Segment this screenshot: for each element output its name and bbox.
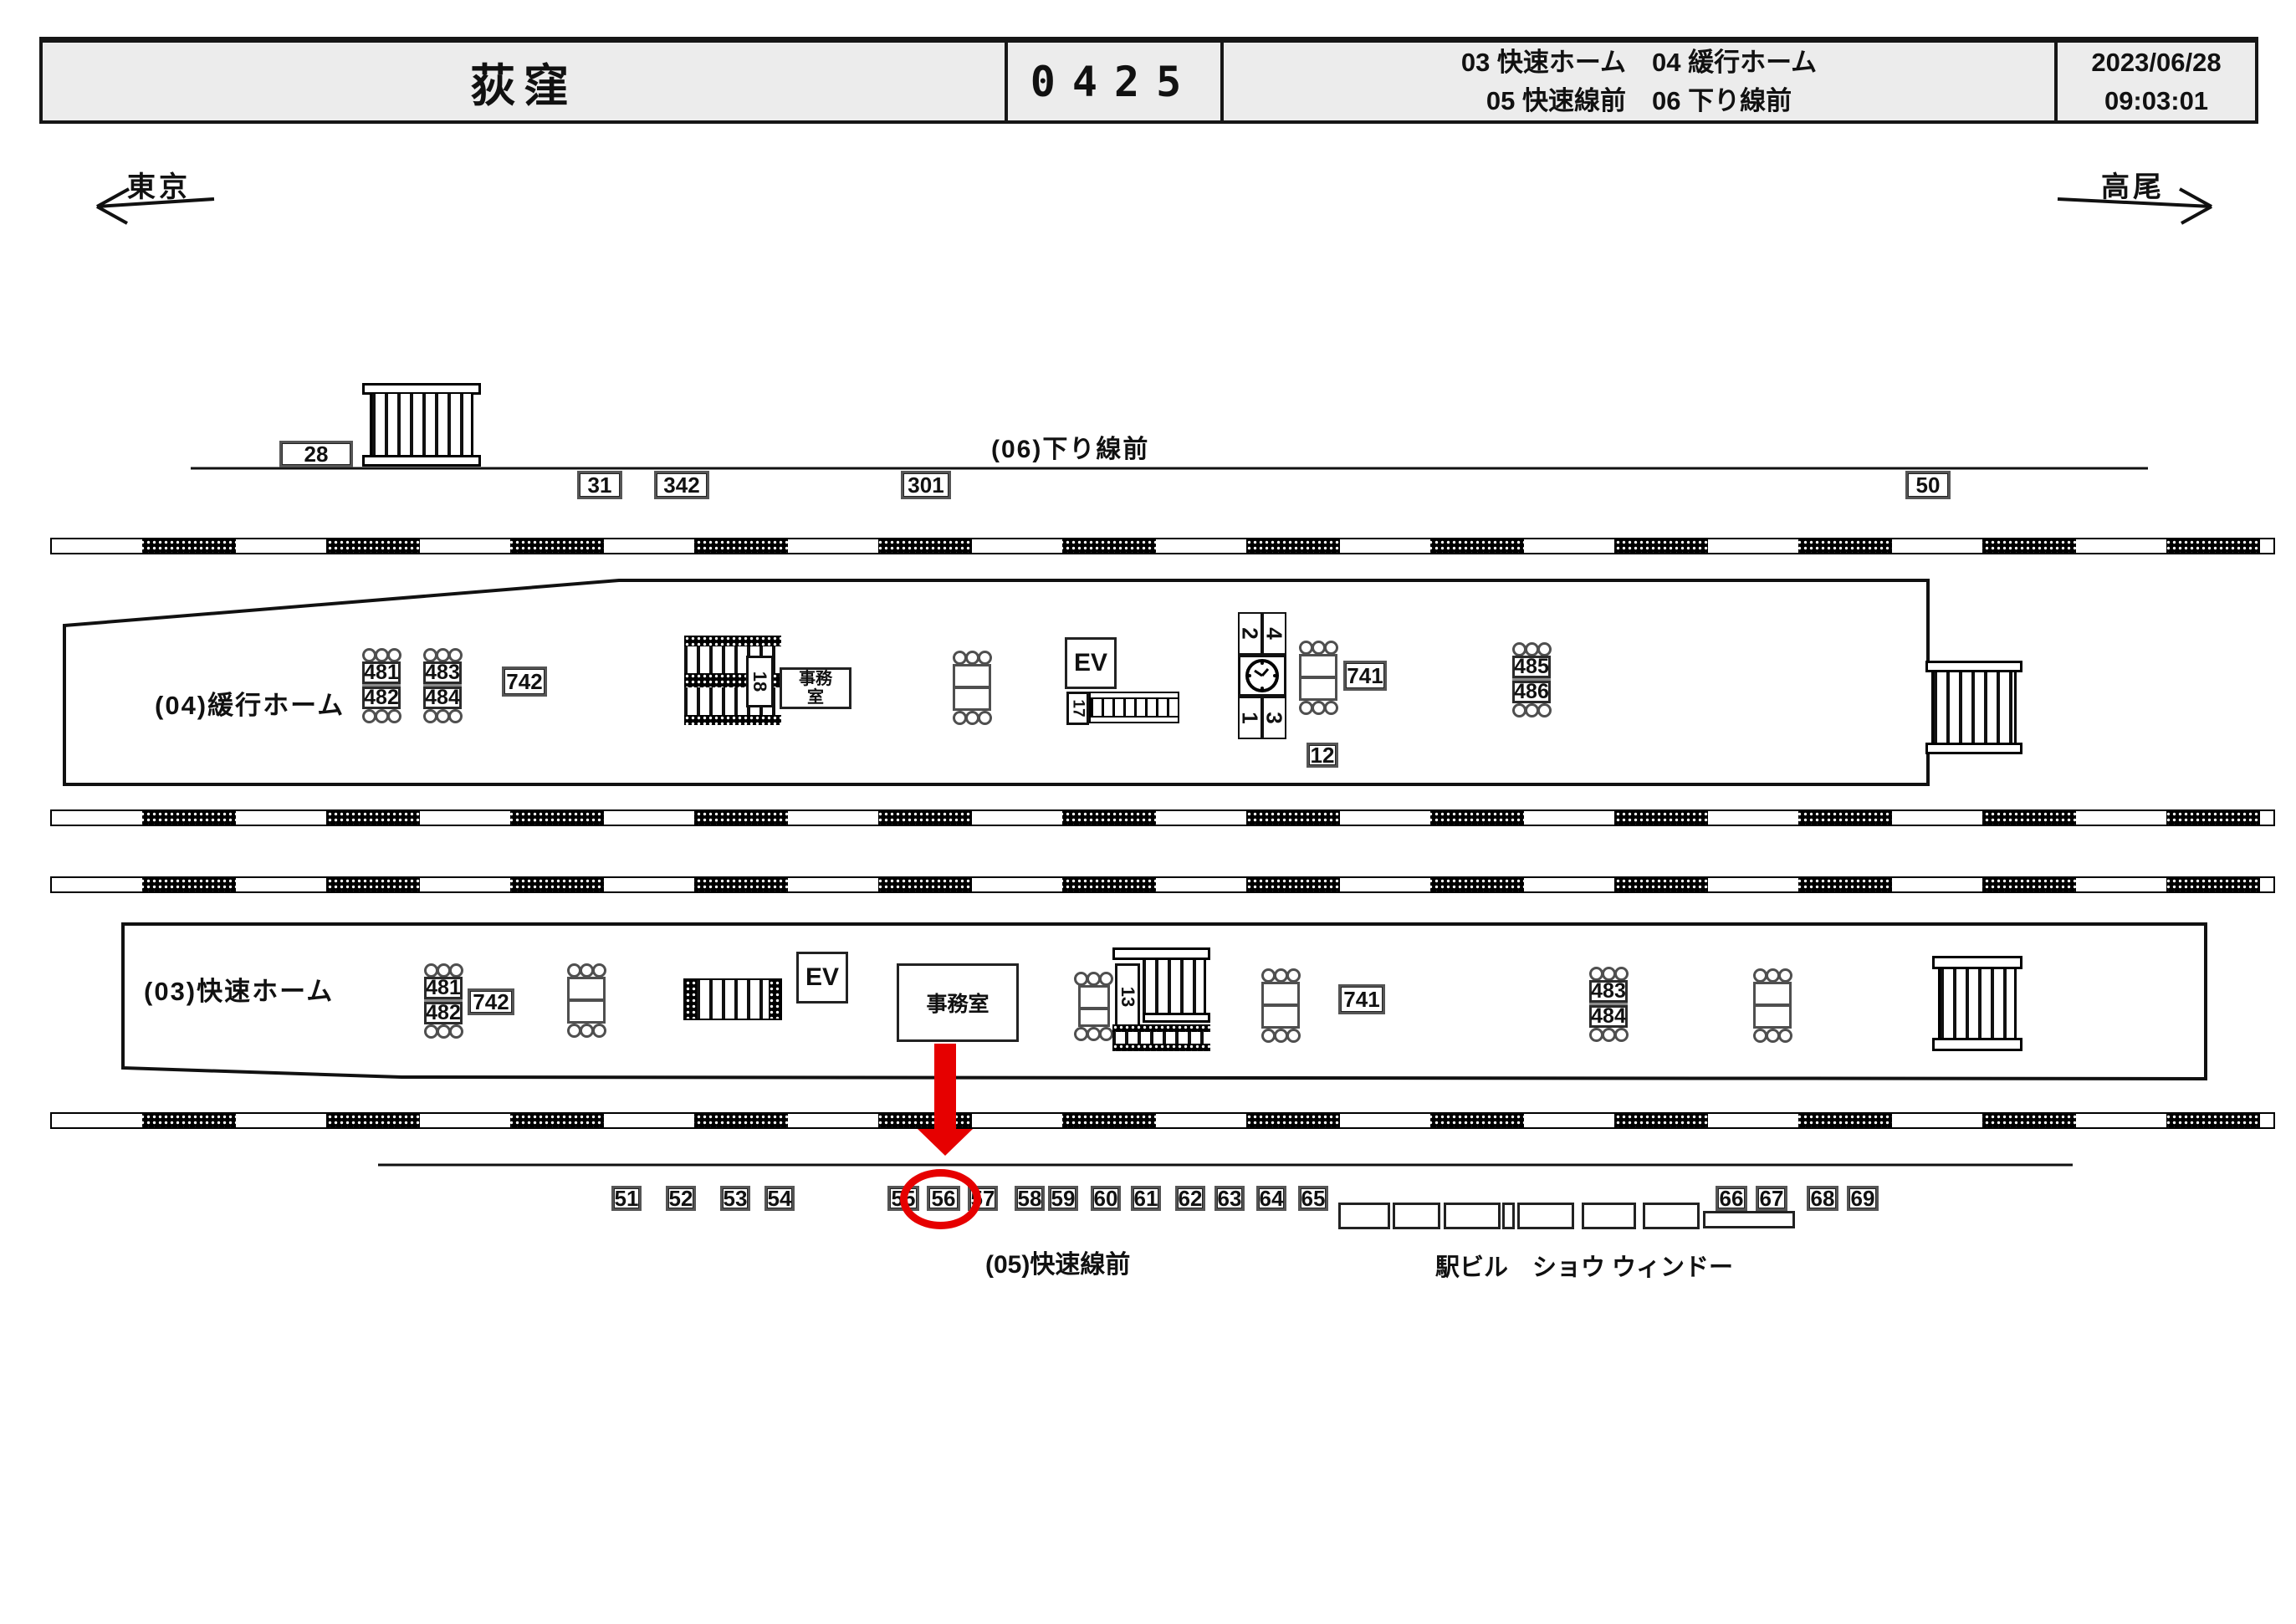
position-cell-483-p03[interactable]: 483 [1589,980,1628,1003]
bench-seats-icon [1754,1029,1792,1042]
station-code: 0425 [1030,58,1198,106]
highlight-arrow-shaft [934,1044,956,1131]
header-bar: 荻窪 0425 03 快速ホーム 04 緩行ホーム 05 快速線前 06 下り線… [39,37,2258,124]
direction-right-label: 高尾 [2101,164,2165,205]
bench-plain [567,963,606,1037]
office-label-line2: 室 [807,688,824,707]
bench-seats-icon [1300,641,1337,654]
show-window [1444,1203,1501,1229]
show-window [1393,1203,1440,1229]
bench-seats-icon [954,711,991,724]
position-box-12[interactable]: 12 [1307,743,1338,768]
bench-plain [1753,968,1792,1042]
bench-sign-483-484-p03: 483 484 [1589,967,1628,1041]
track-band-3 [50,876,2275,893]
stairs-p03-left [683,978,782,1020]
bench-seats-icon [363,709,401,723]
bench-seats-icon [424,709,462,723]
date-text: 2023/06/28 [2091,43,2221,82]
bench-plain [1261,968,1300,1042]
highlight-arrow-head-icon [918,1129,973,1156]
position-box-67[interactable]: 67 [1756,1186,1787,1211]
bench-seats-icon [954,651,991,664]
escalator-17-label: 17 [1069,699,1087,717]
position-box-741-p04[interactable]: 741 [1343,661,1387,691]
station-code-cell: 0425 [1005,43,1220,120]
tower-stair-2: 2 [1237,627,1263,639]
position-box-63[interactable]: 63 [1214,1186,1245,1211]
bench-seats-icon [568,1024,606,1037]
elevator-box-p04: EV [1065,637,1117,689]
bench-seats-icon [424,648,462,661]
bench-sign-481-482: 481 482 [362,648,401,723]
position-box-61[interactable]: 61 [1131,1186,1161,1211]
stairs-13-box: 13 [1115,963,1140,1030]
station-facility-map: 荻窪 0425 03 快速ホーム 04 緩行ホーム 05 快速線前 06 下り線… [0,0,2296,1624]
escalator-17-box: 17 [1066,692,1089,725]
stairs-line06 [362,383,481,467]
show-window [1502,1203,1515,1229]
elevator-box-p03: EV [796,952,848,1004]
position-box-301[interactable]: 301 [901,471,951,499]
bench-seats-icon [1075,972,1112,985]
tower-stair-1: 1 [1237,712,1263,723]
position-box-742-p04[interactable]: 742 [502,666,547,697]
position-box-741-p03[interactable]: 741 [1338,984,1385,1014]
office-box-p03: 事務室 [897,963,1019,1042]
show-window-wide [1703,1211,1795,1228]
position-box-53[interactable]: 53 [720,1186,750,1211]
position-box-54[interactable]: 54 [764,1186,795,1211]
bench-seats-icon [1300,701,1337,714]
show-window-label: 駅ビル ショウ ウィンドー [1435,1248,1733,1283]
show-window [1338,1203,1390,1229]
office-box-p04: 事務 室 [780,667,851,709]
position-box-31[interactable]: 31 [577,471,622,499]
bench-seats-icon [425,963,463,977]
show-window [1643,1203,1700,1229]
bench-seats-icon [1590,967,1628,980]
stairs-18-label: 18 [749,672,770,692]
bench-seats-icon [363,648,401,661]
position-box-342[interactable]: 342 [654,471,709,499]
position-cell-482-p03[interactable]: 482 [424,1002,463,1024]
clock-icon [1244,657,1281,694]
tower-stair-3: 3 [1261,712,1287,723]
position-cell-484-p03[interactable]: 484 [1589,1005,1628,1028]
stairs-13-top-rail [1112,947,1210,960]
stairs-p04-right [1925,661,2022,754]
position-box-62[interactable]: 62 [1175,1186,1205,1211]
position-cell-484[interactable]: 484 [423,687,462,709]
stairs-18: 18 [684,636,781,725]
show-window [1517,1203,1574,1229]
tower-stair-4: 4 [1261,627,1287,639]
platform04-label: (04)緩行ホーム [155,684,345,722]
position-box-66[interactable]: 66 [1716,1186,1747,1211]
position-cell-481[interactable]: 481 [362,661,401,684]
position-cell-485[interactable]: 485 [1512,656,1551,678]
position-cell-486[interactable]: 486 [1512,681,1551,703]
platform03-label: (03)快速ホーム [144,970,334,1008]
direction-left-label: 東京 [127,164,191,205]
platform-list-line2: 05 快速線前 06 下り線前 [1486,82,1792,120]
position-cell-481-p03[interactable]: 481 [424,977,463,999]
position-box-69[interactable]: 69 [1847,1186,1879,1211]
position-box-51[interactable]: 51 [611,1186,642,1211]
track-band-4 [50,1112,2275,1129]
office-label-line1: 事務 [799,670,832,688]
platform-list-line1: 03 快速ホーム 04 緩行ホーム [1461,43,1817,82]
datetime-cell: 2023/06/28 09:03:01 [2054,43,2255,120]
line05-label: (05)快速線前 [985,1244,1130,1280]
bench-sign-481-482-p03: 481 482 [424,963,463,1038]
clock-cell [1238,655,1286,697]
station-name: 荻窪 [470,49,577,115]
stairs-13-lower [1112,1024,1210,1051]
stairs-13-bottom-rail [1143,1013,1210,1023]
line06-label: (06)下り線前 [991,428,1149,465]
time-text: 09:03:01 [2104,82,2208,120]
position-box-59[interactable]: 59 [1048,1186,1078,1211]
position-box-742-p03[interactable]: 742 [468,988,514,1015]
bench-seats-icon [1513,703,1551,717]
bench-seats-icon [1513,642,1551,656]
bench-seats-icon [425,1024,463,1038]
position-cell-483[interactable]: 483 [423,661,462,684]
bench-plain [953,651,991,724]
position-box-52[interactable]: 52 [666,1186,696,1211]
bench-seats-icon [1754,968,1792,982]
bench-seats-icon [1590,1028,1628,1041]
bench-plain-small [1075,972,1112,1040]
bench-plain [1299,641,1337,714]
escalator-ladder-icon [1089,692,1179,725]
track-band-1 [50,538,2275,554]
highlight-circle-56 [900,1169,981,1229]
bench-sign-485-486: 485 486 [1512,642,1551,717]
bench-sign-483-484: 483 484 [423,648,462,723]
bench-seats-icon [1262,1029,1300,1042]
track-band-2 [50,809,2275,826]
position-box-28[interactable]: 28 [279,441,353,467]
position-box-50[interactable]: 50 [1905,471,1951,499]
bench-seats-icon [1262,968,1300,982]
platform-list-cell: 03 快速ホーム 04 緩行ホーム 05 快速線前 06 下り線前 [1220,43,2054,120]
bench-seats-icon [1075,1027,1112,1040]
position-box-65[interactable]: 65 [1298,1186,1328,1211]
stairs-p03-right [1932,956,2022,1051]
position-cell-482[interactable]: 482 [362,687,401,709]
position-box-58[interactable]: 58 [1015,1186,1045,1211]
stairs-13-bars [1143,960,1206,1015]
position-box-60[interactable]: 60 [1091,1186,1121,1211]
overpass-stairs-tower: 2 4 1 3 [1238,612,1286,739]
position-box-68[interactable]: 68 [1807,1186,1838,1211]
bench-seats-icon [568,963,606,977]
position-box-64[interactable]: 64 [1256,1186,1286,1211]
show-window [1582,1203,1636,1229]
stairs-13-label: 13 [1117,987,1138,1007]
station-name-cell: 荻窪 [43,43,1005,120]
